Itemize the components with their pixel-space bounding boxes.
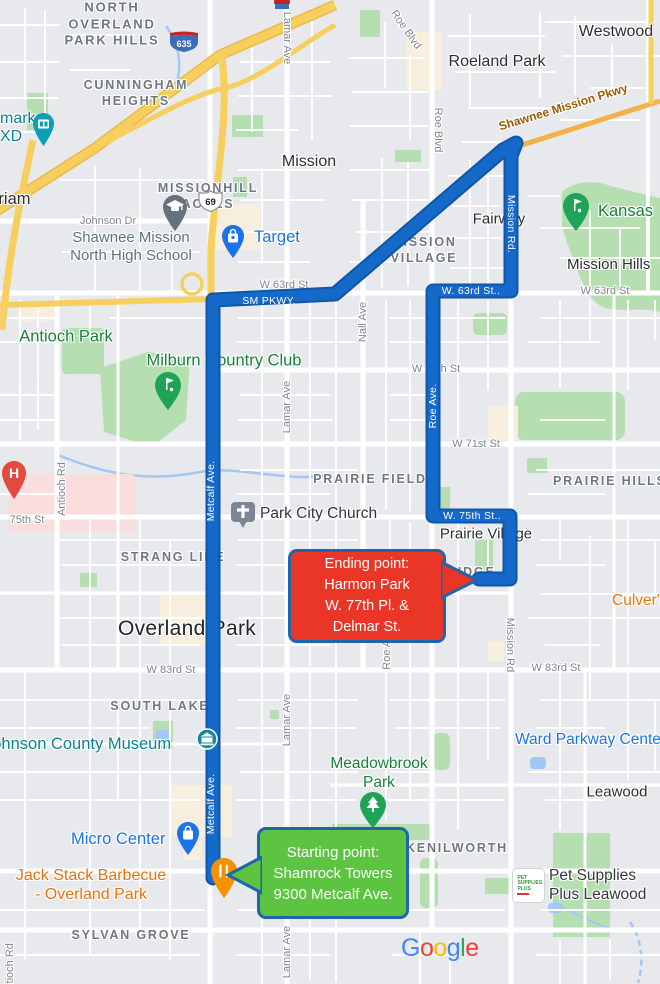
ending-callout-arrow bbox=[441, 558, 483, 602]
map-canvas[interactable]: NORTH OVERLAND PARK HILLS CUNNINGHAM HEI… bbox=[0, 0, 660, 984]
google-letter-o1: o bbox=[420, 934, 433, 962]
google-letter-e: e bbox=[465, 934, 478, 962]
ending-point-callout: Ending point: Harmon Park W. 77th Pl. & … bbox=[288, 549, 446, 643]
starting-point-callout: Starting point: Shamrock Towers 9300 Met… bbox=[257, 827, 409, 919]
google-letter-g2: g bbox=[447, 934, 460, 962]
google-letter-g1: G bbox=[401, 934, 420, 962]
google-logo[interactable]: Google bbox=[401, 934, 479, 963]
callouts-layer: Ending point: Harmon Park W. 77th Pl. & … bbox=[0, 0, 660, 984]
starting-callout-arrow bbox=[224, 855, 262, 895]
google-letter-o2: o bbox=[433, 934, 446, 962]
